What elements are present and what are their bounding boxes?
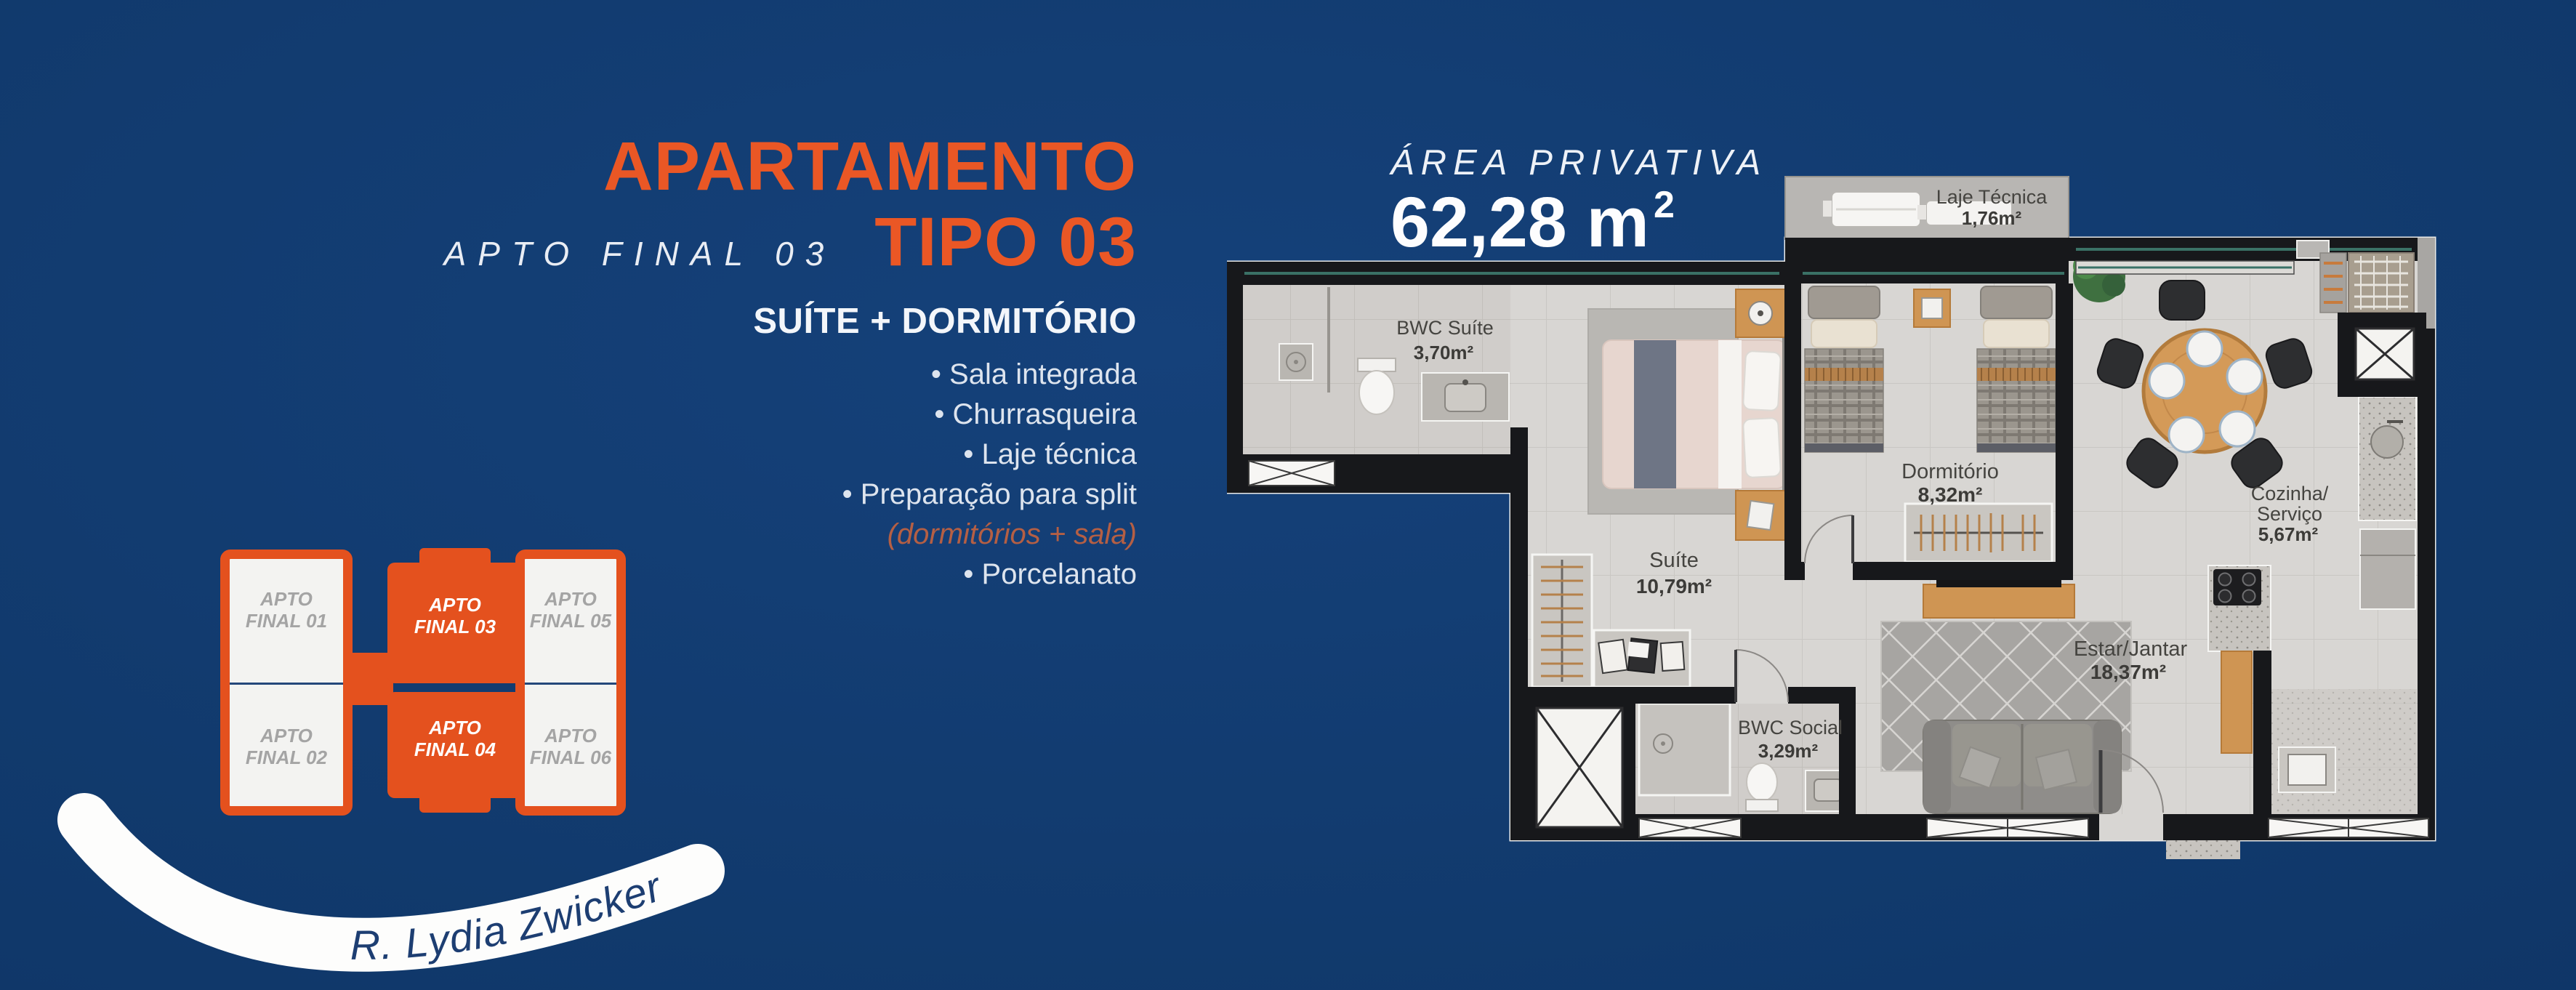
room-area-bwc-social: 3,29m² bbox=[1758, 740, 1819, 762]
keyplan-unit-label-06: APTO FINAL 06 bbox=[527, 725, 614, 769]
room-label-suite: Suíte bbox=[1649, 549, 1699, 572]
apto-final-label: APTO FINAL 03 bbox=[444, 234, 836, 273]
dorm-bed bbox=[1977, 286, 2056, 452]
keyplan-unit-label-03: APTO FINAL 03 bbox=[411, 595, 499, 638]
feature-item: • Churrasqueira bbox=[934, 395, 1137, 435]
room-label-bwc-suite: BWC Suíte bbox=[1396, 317, 1494, 339]
keyplan-divider bbox=[230, 683, 343, 685]
features-heading: SUÍTE + DORMITÓRIO bbox=[753, 301, 1137, 342]
window bbox=[1639, 818, 1741, 837]
street-ribbon: R. Lydia Zwicker bbox=[57, 768, 759, 990]
room-label-laje: Laje Técnica bbox=[1936, 186, 2048, 208]
wardrobe-icon bbox=[1905, 504, 2052, 562]
laje-tecnica-slab: Laje Técnica 1,76m² bbox=[1785, 177, 2069, 239]
room-area-estar: 18,37m² bbox=[2090, 661, 2166, 683]
nightstand-icon bbox=[1736, 289, 1785, 337]
floor-plan: Laje Técnica 1,76m² bbox=[1227, 64, 2480, 903]
sofa-icon bbox=[1923, 720, 2121, 813]
page-title-line2: TIPO 03 bbox=[874, 208, 1137, 277]
keyplan-core bbox=[345, 653, 393, 705]
doormat bbox=[2166, 840, 2240, 859]
room-label-dorm: Dormitório bbox=[1901, 460, 1999, 483]
sink-icon bbox=[2371, 426, 2403, 458]
room-area-suite: 10,79m² bbox=[1636, 575, 1712, 597]
room-area-bwc-suite: 3,70m² bbox=[1414, 342, 1474, 363]
feature-note: (dormitórios + sala) bbox=[887, 515, 1137, 555]
keyplan-unit-label-01: APTO FINAL 01 bbox=[243, 589, 330, 632]
closet-icon bbox=[1532, 555, 1592, 687]
shower-icon bbox=[1639, 704, 1730, 795]
laundry-tank-icon bbox=[2279, 747, 2335, 792]
toilet-icon bbox=[1746, 763, 1778, 811]
toilet-icon bbox=[1358, 358, 1396, 414]
duct-icon bbox=[2338, 313, 2426, 397]
room-area-laje: 1,76m² bbox=[1962, 207, 2022, 229]
page-title: APARTAMENTO bbox=[407, 132, 1137, 201]
room-label-bwc-social: BWC Social bbox=[1738, 717, 1843, 739]
laundry-baskets-icon bbox=[1594, 630, 1690, 687]
dorm-bed bbox=[1805, 286, 1883, 452]
grill-icon bbox=[2320, 253, 2414, 313]
window bbox=[1249, 461, 1335, 486]
nightstand-icon bbox=[1914, 289, 1950, 327]
title-row: APTO FINAL 03 TIPO 03 bbox=[313, 208, 1137, 277]
suite-bed bbox=[1588, 309, 1789, 514]
feature-item: • Sala integrada bbox=[931, 355, 1137, 395]
fridge-icon bbox=[2360, 529, 2415, 609]
kitchen-sink-counter bbox=[2359, 397, 2416, 520]
keyplan-unit-label-04: APTO FINAL 04 bbox=[411, 717, 499, 761]
tv-stand-icon bbox=[1923, 576, 2074, 618]
window bbox=[1927, 818, 2088, 837]
vanity-icon bbox=[1422, 373, 1509, 421]
keyplan-divider bbox=[525, 683, 616, 685]
ac-unit-icon bbox=[1823, 192, 1920, 227]
brochure-page: APARTAMENTO APTO FINAL 03 TIPO 03 SUÍTE … bbox=[0, 0, 2576, 990]
room-area-dorm: 8,32m² bbox=[1918, 483, 1983, 506]
nightstand-icon bbox=[1736, 491, 1785, 540]
room-label-cozinha-2: Serviço bbox=[2257, 503, 2322, 525]
kitchen-wood-counter bbox=[2221, 651, 2252, 753]
kitchen-island bbox=[2208, 566, 2271, 651]
window bbox=[2269, 818, 2428, 837]
cooktop-icon bbox=[2213, 569, 2261, 605]
keyplan-unit-label-02: APTO FINAL 02 bbox=[243, 725, 330, 769]
room-area-cozinha: 5,67m² bbox=[2258, 523, 2319, 545]
feature-item: • Preparação para split bbox=[842, 475, 1137, 515]
elevator-shaft-icon bbox=[1524, 695, 1635, 840]
feature-item: • Porcelanato bbox=[963, 555, 1137, 595]
keyplan-unit-label-05: APTO FINAL 05 bbox=[527, 589, 614, 632]
room-label-estar: Estar/Jantar bbox=[2074, 637, 2188, 661]
feature-item: • Laje técnica bbox=[963, 435, 1137, 475]
room-label-cozinha-1: Cozinha/ bbox=[2251, 483, 2329, 504]
